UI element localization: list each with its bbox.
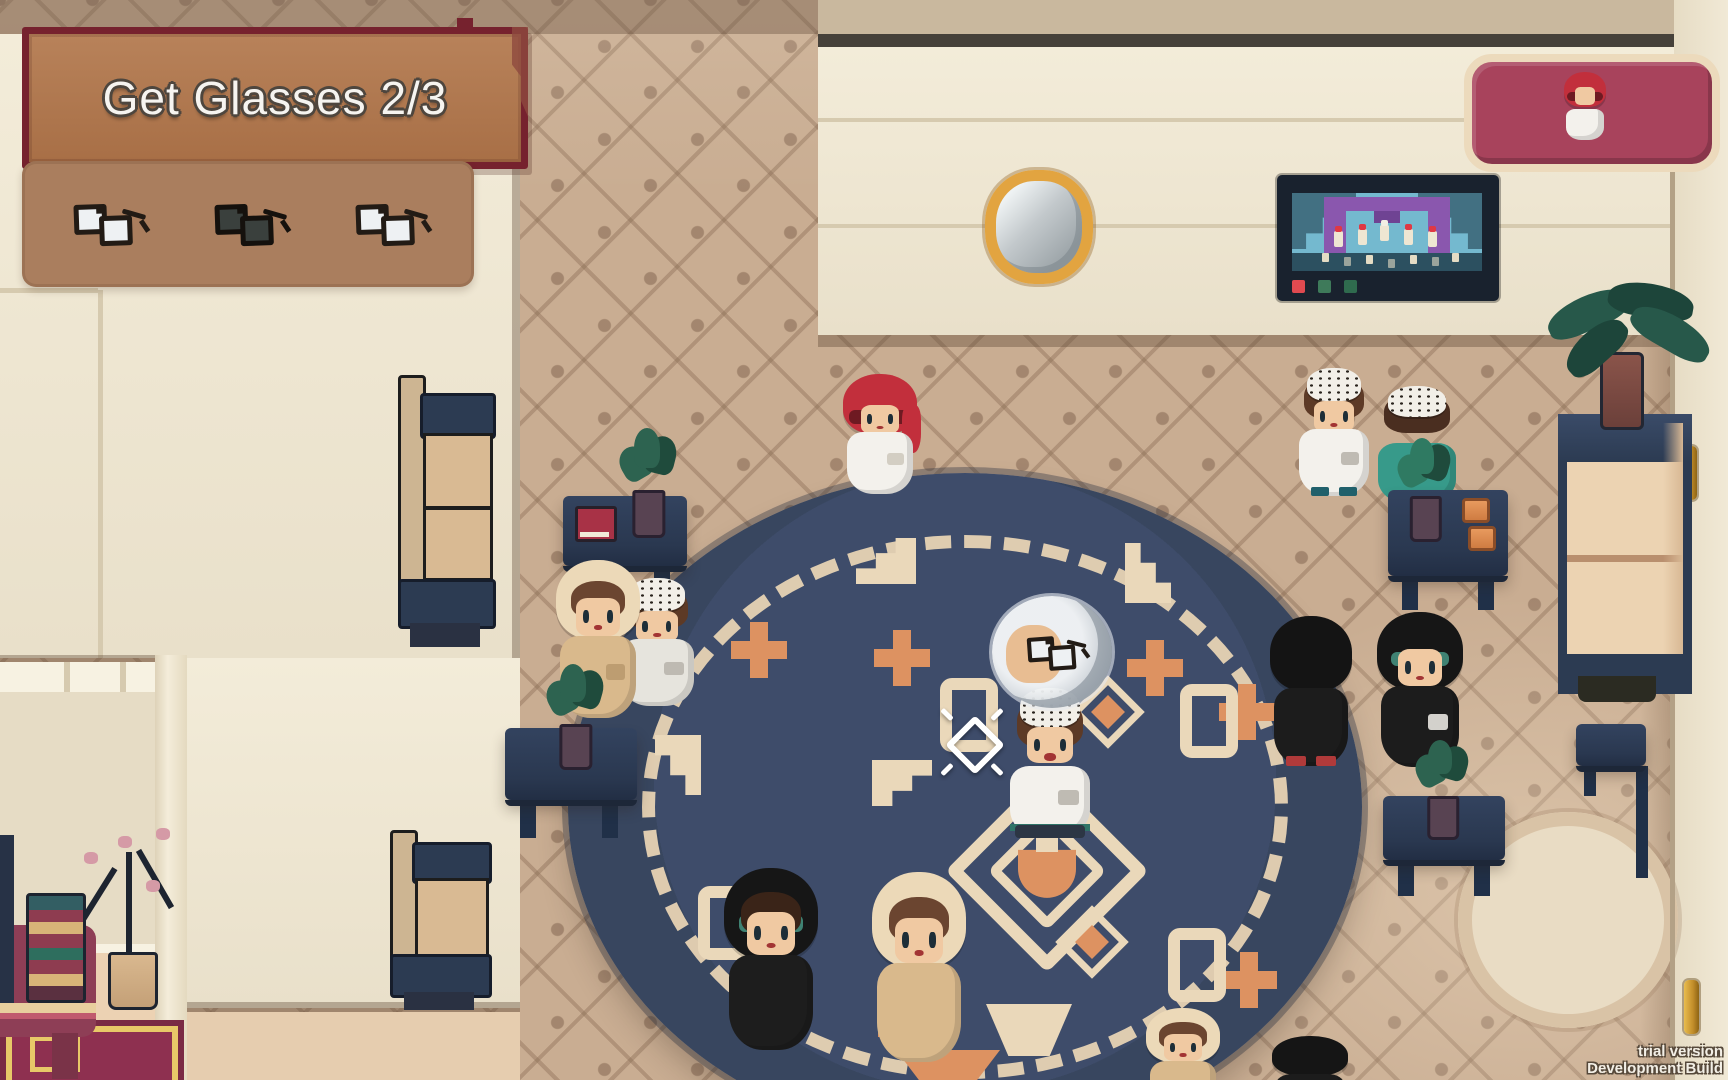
prayer-cap bbox=[1388, 386, 1446, 417]
bench-east-back bbox=[1636, 766, 1648, 878]
eye bbox=[902, 932, 908, 948]
eye bbox=[607, 610, 613, 623]
tv-figure bbox=[1380, 225, 1389, 241]
face bbox=[636, 611, 679, 642]
body bbox=[847, 432, 914, 494]
mouth bbox=[915, 950, 924, 955]
tv-figure bbox=[1358, 229, 1367, 245]
shoes bbox=[1286, 756, 1335, 767]
glasses-clear-2-icon bbox=[347, 187, 428, 256]
west-wall-groove-h bbox=[0, 288, 98, 293]
tv-button-red bbox=[1292, 280, 1305, 293]
north-wall-groove-2 bbox=[818, 224, 1728, 228]
blossom-2 bbox=[118, 836, 132, 848]
wall-mirror bbox=[985, 170, 1093, 284]
tv-button-green-2 bbox=[1344, 280, 1357, 293]
woman-tan-front[interactable] bbox=[872, 872, 966, 1062]
west-wall-edge bbox=[512, 95, 520, 658]
body bbox=[1150, 1061, 1217, 1080]
cabinet-feet bbox=[1578, 676, 1656, 702]
eye bbox=[1034, 739, 1040, 751]
wall-tv bbox=[1277, 175, 1499, 301]
shop-books-stack bbox=[26, 893, 86, 1003]
thought-bubble bbox=[992, 596, 1112, 708]
tv-crowd-dot bbox=[1432, 257, 1439, 266]
seated-base bbox=[1015, 825, 1085, 839]
face bbox=[1164, 1034, 1202, 1060]
woman-tan-bottom[interactable] bbox=[1146, 1008, 1220, 1080]
body bbox=[1299, 429, 1369, 496]
body bbox=[877, 963, 962, 1062]
glasses-dark-icon bbox=[205, 187, 286, 256]
woman-black-back[interactable] bbox=[1270, 616, 1352, 766]
mouth bbox=[767, 943, 776, 948]
eye bbox=[781, 926, 787, 941]
shop-door-pillar bbox=[155, 655, 187, 1080]
rug-ornament-ring bbox=[1180, 684, 1238, 758]
blossom-3 bbox=[156, 828, 170, 840]
face bbox=[1027, 727, 1073, 763]
quest-title: Get Glasses 2/3 bbox=[103, 71, 448, 125]
blossom-4 bbox=[146, 880, 160, 892]
quest-banner-notch bbox=[457, 18, 473, 30]
man-red-ghutra[interactable] bbox=[843, 374, 917, 494]
blossom-branch-main bbox=[126, 852, 132, 956]
body bbox=[1274, 688, 1348, 766]
tv-crowd-dot bbox=[1410, 255, 1417, 264]
rug-ornament-plus bbox=[1146, 640, 1164, 696]
potted-plant-1 bbox=[618, 428, 680, 538]
tv-figure bbox=[1334, 231, 1343, 247]
hood-headwear bbox=[1272, 1036, 1348, 1076]
avatar-body bbox=[1566, 109, 1604, 140]
tv-figure bbox=[1404, 229, 1413, 245]
bench-west-lower bbox=[390, 830, 490, 1010]
top-wall-cap bbox=[818, 0, 1728, 36]
prayer-cap bbox=[1307, 368, 1360, 401]
shop-desk-leg bbox=[52, 1033, 78, 1079]
eye bbox=[583, 610, 589, 623]
blossom-pot bbox=[108, 952, 158, 1010]
eye bbox=[888, 414, 893, 424]
tv-crowd-dot bbox=[1366, 255, 1373, 264]
profile-avatar bbox=[1564, 72, 1606, 140]
mouth bbox=[653, 633, 661, 637]
palm-trunk bbox=[1600, 352, 1644, 430]
eye bbox=[1191, 1043, 1196, 1052]
rug-ornament-plus bbox=[750, 622, 768, 678]
west-floor-strip bbox=[170, 1012, 520, 1080]
mouth bbox=[1044, 753, 1056, 761]
shop-window-mullion-1 bbox=[64, 662, 70, 692]
shop-window-trim bbox=[0, 662, 158, 692]
potted-plant-3 bbox=[1396, 438, 1456, 542]
garment-print bbox=[1058, 790, 1079, 804]
quest-items-panel bbox=[22, 161, 474, 287]
garment-print bbox=[606, 664, 626, 680]
tv-screen bbox=[1292, 193, 1482, 271]
red-book bbox=[575, 506, 617, 542]
mouth bbox=[594, 625, 602, 630]
tv-button-green-1 bbox=[1318, 280, 1331, 293]
tv-crowd-dot bbox=[1452, 253, 1459, 262]
shop-window-mullion-2 bbox=[120, 662, 126, 692]
face bbox=[861, 405, 899, 434]
coffee-cup-1 bbox=[1462, 498, 1490, 523]
body bbox=[729, 955, 814, 1050]
eye bbox=[754, 926, 760, 941]
shop-dark-panel bbox=[0, 835, 14, 1003]
woman-seated-center[interactable] bbox=[1006, 688, 1094, 838]
watermark-line-2: Development Build bbox=[1587, 1060, 1723, 1077]
eye bbox=[1320, 411, 1325, 421]
garment-print bbox=[1341, 452, 1359, 465]
mouth bbox=[1180, 1053, 1187, 1056]
tv-crowd-dot bbox=[1344, 257, 1351, 266]
bench-west-upper bbox=[398, 375, 492, 665]
mouth bbox=[877, 426, 884, 429]
door-handle-lower[interactable] bbox=[1684, 980, 1699, 1034]
body bbox=[1276, 1074, 1344, 1080]
build-watermark: trial version Development Build bbox=[1587, 1043, 1723, 1077]
face bbox=[747, 912, 796, 956]
eye bbox=[1060, 739, 1066, 751]
eye bbox=[929, 932, 935, 948]
mouth bbox=[1416, 676, 1424, 680]
bench-east bbox=[1576, 724, 1646, 766]
glasses-clear-1 bbox=[62, 189, 152, 259]
eye bbox=[1405, 661, 1411, 674]
eye bbox=[666, 621, 672, 631]
face bbox=[895, 918, 944, 964]
tv-crowd-dot bbox=[1322, 253, 1329, 262]
blossom-1 bbox=[84, 852, 98, 864]
rug-ornament-plus bbox=[1238, 684, 1256, 740]
person-black-bottom[interactable] bbox=[1272, 1036, 1348, 1080]
garment-print bbox=[664, 662, 683, 675]
hood-headwear bbox=[1270, 616, 1352, 691]
garment-print bbox=[1428, 714, 1448, 730]
target-cursor-icon bbox=[944, 714, 1000, 770]
eye bbox=[867, 414, 872, 424]
glasses-dark bbox=[203, 189, 293, 259]
west-wall-groove-v bbox=[98, 290, 103, 658]
quest-banner-fold bbox=[512, 27, 528, 117]
man-white-thobe[interactable] bbox=[1295, 368, 1373, 496]
shoes bbox=[1311, 487, 1358, 496]
eye bbox=[1343, 411, 1348, 421]
glasses-clear-2 bbox=[344, 189, 434, 259]
eye bbox=[1429, 661, 1435, 674]
tv-figure bbox=[1428, 231, 1437, 247]
eye bbox=[1170, 1043, 1175, 1052]
game-viewport: Get Glasses 2/3 trial version Developmen… bbox=[0, 0, 1728, 1080]
woman-black-front[interactable] bbox=[724, 868, 818, 1050]
top-wall-edge bbox=[818, 34, 1728, 47]
garment-print bbox=[887, 453, 904, 465]
face bbox=[1314, 401, 1355, 432]
display-cabinet bbox=[1558, 414, 1692, 694]
rug-ornament-plus bbox=[1240, 952, 1258, 1008]
potted-plant-2 bbox=[545, 664, 607, 770]
mouth bbox=[1330, 423, 1337, 427]
coffee-cup-2 bbox=[1468, 526, 1496, 551]
watermark-line-1: trial version bbox=[1587, 1043, 1723, 1060]
face bbox=[576, 598, 620, 636]
avatar-face bbox=[1575, 87, 1595, 105]
tv-crowd-dot bbox=[1388, 259, 1395, 268]
eye bbox=[642, 621, 648, 631]
rug-ornament-plus bbox=[893, 630, 911, 686]
rug-ornament-ring bbox=[1168, 928, 1226, 1002]
profile-button[interactable] bbox=[1464, 54, 1720, 172]
potted-plant-4 bbox=[1414, 740, 1472, 840]
shop-desk-stripe bbox=[0, 1003, 96, 1013]
face bbox=[1398, 649, 1443, 686]
quest-banner[interactable]: Get Glasses 2/3 bbox=[22, 27, 528, 169]
glasses-clear-1-icon bbox=[64, 187, 145, 256]
